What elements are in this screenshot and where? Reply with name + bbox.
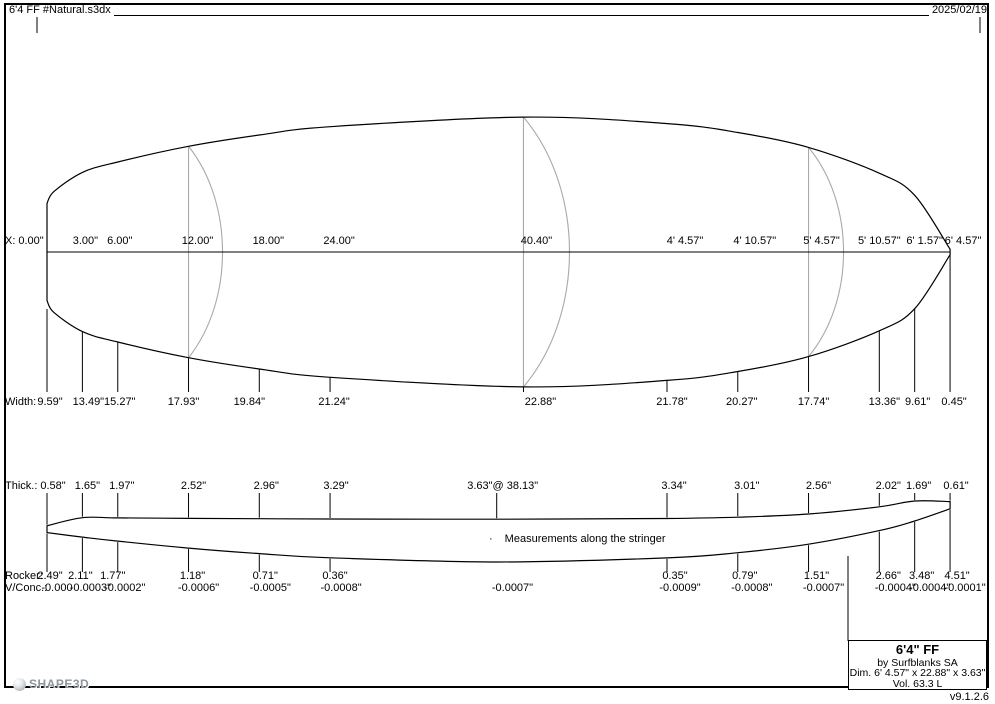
width-value: 21.78"	[656, 396, 687, 408]
thick-value: 3.34"	[661, 480, 686, 492]
thick-value: 3.63"@ 38.13"	[467, 480, 538, 492]
vconc-value: -0.0008"	[320, 582, 361, 594]
stringer-note: ·Measurements along the stringer	[489, 533, 665, 545]
x-value: 12.00"	[182, 235, 213, 247]
rocker-value: 4.51"	[944, 570, 969, 582]
width-value: 13.49"	[73, 396, 104, 408]
note-text: Measurements along the stringer	[505, 533, 666, 545]
rocker-value: 1.77"	[100, 570, 125, 582]
app-version: v9.1.2.6	[950, 691, 989, 703]
thick-value: 1.97"	[109, 480, 134, 492]
width-value: 22.88"	[525, 396, 556, 408]
width-row-prefix: Width:	[5, 396, 36, 408]
rocker-value: 2.66"	[876, 570, 901, 582]
sphere-icon	[13, 678, 26, 691]
thick-value: 3.29"	[323, 480, 348, 492]
shape3d-logo: SHAPE3D	[13, 677, 89, 691]
width-value: 13.36"	[869, 396, 900, 408]
x-value: 40.40"	[521, 235, 552, 247]
thick-value: 3.01"	[734, 480, 759, 492]
rocker-value: 1.51"	[804, 570, 829, 582]
logo-text: SHAPE3D	[29, 677, 89, 691]
thick-value: 1.65"	[75, 480, 100, 492]
thick-value: 2.96"	[254, 480, 279, 492]
thick-value: 2.56"	[806, 480, 831, 492]
rocker-value: 0.36"	[322, 570, 347, 582]
vconc-value: -0.0002"	[104, 582, 145, 594]
x-value: 6' 1.57"	[906, 235, 943, 247]
note-bullet: ·	[489, 533, 493, 545]
thick-value: 2.52"	[181, 480, 206, 492]
vconc-value: -0.0001"	[944, 582, 985, 594]
x-value: 18.00"	[253, 235, 284, 247]
thick-row-prefix: Thick.:	[5, 480, 37, 492]
board-outline-profile	[47, 501, 950, 562]
x-value: 6' 4.57"	[945, 235, 982, 247]
x-row-prefix: X:	[5, 235, 15, 247]
vconc-value: -0.0005"	[250, 582, 291, 594]
vconc-value: -0.0008"	[731, 582, 772, 594]
x-value: 4' 4.57"	[667, 235, 704, 247]
vconc-value: -0.000	[41, 582, 72, 594]
width-value: 0.45"	[941, 396, 966, 408]
x-value: 5' 10.57"	[858, 235, 901, 247]
width-value: 9.61"	[905, 396, 930, 408]
shape3d-print-preview: 6'4 FF #Natural.s3dx 2025/02/19 X:0.00"3…	[0, 0, 995, 704]
board-name: 6'4" FF	[849, 641, 986, 658]
vconc-value: -0.0006"	[178, 582, 219, 594]
thick-value: 0.58"	[40, 480, 65, 492]
vconc-value: -0.0007"	[803, 582, 844, 594]
width-value: 15.27"	[104, 396, 135, 408]
vconc-value: -0.0009"	[659, 582, 700, 594]
x-value: 0.00"	[18, 235, 43, 247]
x-value: 24.00"	[323, 235, 354, 247]
board-volume: Vol. 63.3 L	[849, 679, 986, 689]
x-value: 5' 4.57"	[803, 235, 840, 247]
rocker-value: 0.71"	[253, 570, 278, 582]
x-value: 3.00"	[73, 235, 98, 247]
thick-value: 1.69"	[906, 480, 931, 492]
board-info-box: 6'4" FF by Surfblanks SA Dim. 6' 4.57" x…	[848, 640, 987, 690]
x-value: 6.00"	[107, 235, 132, 247]
thick-value: 2.02"	[876, 480, 901, 492]
rocker-value: 0.79"	[732, 570, 757, 582]
width-value: 19.84"	[234, 396, 265, 408]
rocker-value: 1.18"	[180, 570, 205, 582]
rocker-value: 0.35"	[662, 570, 687, 582]
rocker-value: 2.49"	[37, 570, 62, 582]
width-value: 20.27"	[726, 396, 757, 408]
width-value: 17.74"	[798, 396, 829, 408]
vconc-value: -0.0007"	[492, 582, 533, 594]
width-value: 21.24"	[318, 396, 349, 408]
x-value: 4' 10.57"	[733, 235, 776, 247]
thick-value: 0.61"	[943, 480, 968, 492]
width-value: 9.59"	[37, 396, 62, 408]
rocker-value: 3.48"	[909, 570, 934, 582]
rocker-value: 2.11"	[68, 570, 93, 582]
width-value: 17.93"	[168, 396, 199, 408]
board-drawing	[0, 0, 995, 704]
